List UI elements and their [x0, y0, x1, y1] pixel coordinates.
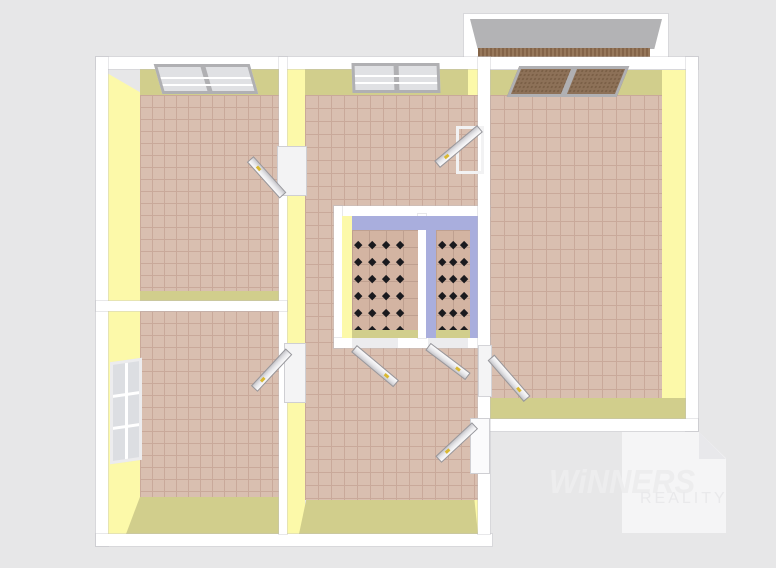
bathroom-north-wall-face — [352, 216, 470, 230]
window-bar — [355, 75, 437, 77]
window-bar — [160, 77, 251, 79]
floor-plan-canvas: WiNNERS REALITY ◆◆◆◆ ◆◆◆◆ ◆◆◆◆ ◆◆◆◆ ◆◆◆◆… — [0, 0, 776, 568]
window-mullion — [201, 67, 213, 91]
door-handle — [445, 448, 451, 454]
bathroom-divider-east-face — [426, 216, 436, 338]
bathroom-north-wall — [334, 206, 490, 216]
doorway-right-room-lower — [478, 345, 492, 397]
watermark-subtitle: REALITY — [640, 490, 728, 508]
room-top-left-floor — [140, 95, 281, 291]
outer-south-wall-right — [480, 419, 698, 431]
window-bar — [162, 84, 253, 86]
outer-south-wall-left — [96, 534, 492, 546]
room-bottom-left-floor — [140, 311, 281, 497]
bathroom-west-wall — [334, 206, 342, 348]
divider-top-bottom-left-north-face — [140, 291, 281, 301]
room-right-east-wall-face — [662, 70, 686, 419]
divider-wall-left — [279, 57, 287, 534]
room-right-floor — [490, 95, 662, 398]
wc-south-wall-face — [436, 330, 470, 338]
door-handle — [455, 366, 461, 371]
window-hallway — [351, 63, 440, 93]
door-handle — [516, 387, 522, 393]
room-top-left-west-wall-face — [108, 69, 140, 301]
hall-west-divider-east-face — [287, 69, 305, 534]
window-bar — [355, 82, 437, 84]
watermark-page-fold — [699, 432, 726, 459]
divider-wall-left-rooms — [96, 301, 287, 311]
hall-south-wall-face — [299, 500, 478, 534]
room-right-south-wall-face — [490, 398, 686, 419]
window-mullion — [125, 363, 128, 459]
window-top-left-room — [154, 64, 259, 94]
bathroom-west-wall-face — [342, 216, 352, 338]
room-bottom-left-south-wall-face — [126, 497, 281, 534]
door-handle — [260, 377, 266, 383]
bathroom-divider-wall — [418, 214, 426, 338]
outer-east-wall — [686, 57, 698, 431]
wc-floor-diamond-pattern: ◆◆◆ ◆◆◆ ◆◆◆ ◆◆◆ ◆◆◆ ◆◆◆ — [438, 236, 470, 330]
door-handle — [384, 373, 390, 379]
window-bottom-left-room — [110, 358, 142, 464]
window-right-room-balcony — [507, 66, 630, 97]
door-handle — [444, 154, 450, 160]
bathroom-south-wall-face — [352, 330, 418, 338]
window-mullion — [561, 69, 577, 94]
window-mullion — [394, 66, 400, 90]
bathroom-floor-diamond-pattern: ◆◆◆◆ ◆◆◆◆ ◆◆◆◆ ◆◆◆◆ ◆◆◆◆ ◆◆◆◆ — [354, 236, 416, 330]
door-handle — [256, 166, 262, 172]
balcony-wall — [470, 19, 662, 49]
